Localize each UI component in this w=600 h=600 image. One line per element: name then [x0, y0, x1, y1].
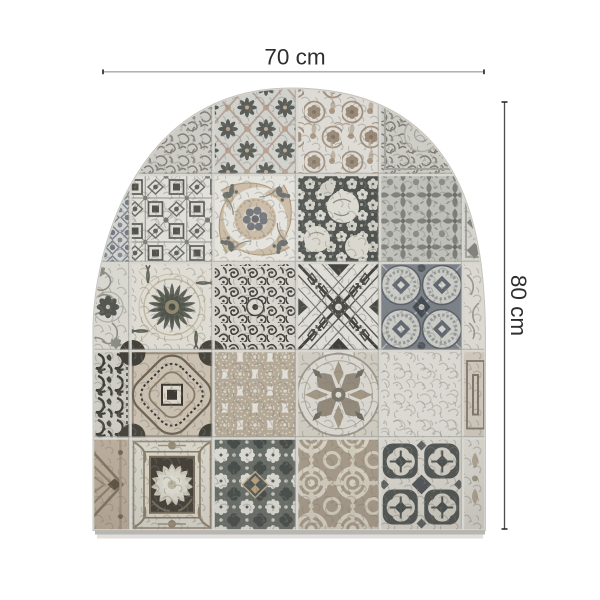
svg-text:70 cm: 70 cm	[264, 45, 325, 70]
svg-text:80 cm: 80 cm	[506, 275, 531, 336]
